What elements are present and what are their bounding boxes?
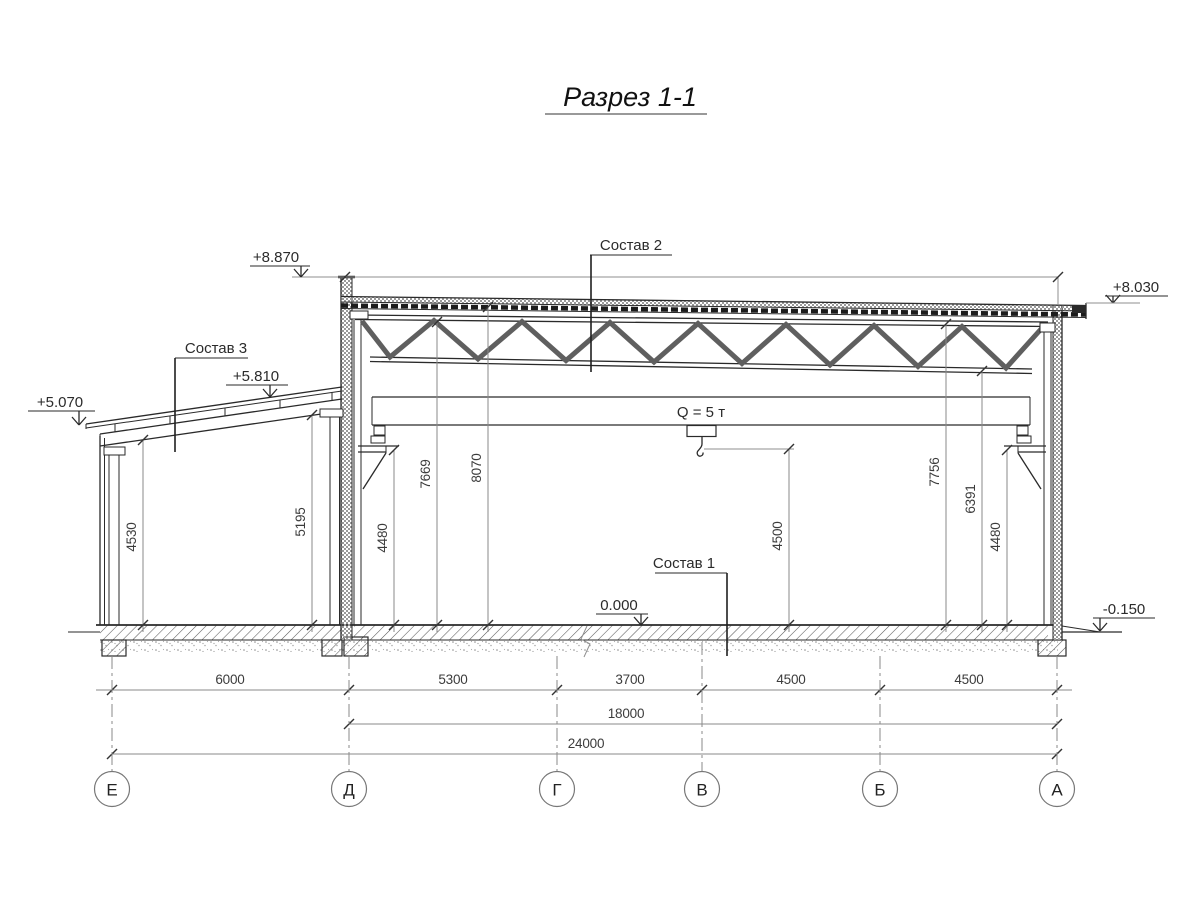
vdim-4500-hook-value: 4500: [770, 521, 785, 550]
dim-4500-vb: 4500: [776, 672, 805, 687]
annex: [86, 387, 343, 625]
page-title: Разрез 1-1: [563, 82, 697, 112]
dim-3700: 3700: [615, 672, 644, 687]
elevation-annex-ridge: +5.810: [226, 368, 288, 397]
axis-bubble-g: Г: [540, 772, 575, 807]
wall-axis-a: [1053, 306, 1062, 640]
footing-axis-d-left: [322, 640, 342, 656]
vdim-6391: 6391: [963, 366, 987, 632]
vdim-5195-value: 5195: [293, 507, 308, 536]
annex-capital-left: [104, 447, 125, 455]
dim-6000: 6000: [215, 672, 244, 687]
drawing-sheet: Разрез 1-1: [0, 0, 1200, 900]
elevation-ground: -0.150: [1093, 601, 1155, 631]
dim-4500-ba: 4500: [954, 672, 983, 687]
vdim-4480-right: 4480: [988, 445, 1012, 632]
callout-sostav-1-label: Состав 1: [653, 555, 715, 572]
section-1-1-drawing: Разрез 1-1: [0, 0, 1200, 900]
annex-roof-deck-top: [86, 387, 342, 424]
vdim-5195: 5195: [293, 410, 317, 632]
elevation-roof-right: +8.030: [1086, 279, 1168, 303]
axis-letter-b: Б: [874, 781, 885, 800]
dim-5300: 5300: [438, 672, 467, 687]
vdim-8070-value: 8070: [469, 453, 484, 482]
vdim-4480-left: 4480: [375, 445, 399, 632]
vertical-dimensions: 4530 5195 4480 7669 8070: [124, 302, 1012, 632]
vdim-4530-value: 4530: [124, 522, 139, 551]
crane-hook: [697, 437, 703, 457]
elevation-annex-ridge-value: +5.810: [233, 368, 279, 385]
axis-bubble-d: Д: [332, 772, 367, 807]
crane-rail-corbel-right: [1004, 426, 1046, 489]
vdim-4530: 4530: [124, 435, 148, 632]
elevation-roof-right-value: +8.030: [1113, 279, 1159, 296]
title-block: Разрез 1-1: [545, 82, 707, 114]
truss-support-right: [1040, 323, 1055, 332]
vdim-7756: 7756: [927, 319, 951, 632]
elevation-annex-eave-value: +5.070: [37, 394, 83, 411]
annex-capital-right: [320, 409, 343, 417]
vdim-4480-right-value: 4480: [988, 522, 1003, 551]
axis-letter-a: А: [1051, 781, 1063, 800]
axis-bubble-a: А: [1040, 772, 1075, 807]
callout-sostav-2-label: Состав 2: [600, 237, 662, 254]
truss-web-diagonals: [362, 321, 1042, 369]
axis-bubble-b: Б: [863, 772, 898, 807]
axis-letter-d: Д: [343, 781, 355, 800]
vdim-4480-left-value: 4480: [375, 523, 390, 552]
crane-trolley: [687, 426, 716, 437]
elevation-floor-value: 0.000: [600, 597, 638, 614]
crane-rail-corbel-left: [358, 426, 399, 489]
vdim-7669: 7669: [418, 317, 442, 632]
axis-bubble-e: Е: [95, 772, 130, 807]
floor-subbase: [100, 640, 1058, 652]
apron-slope: [1062, 626, 1100, 632]
roof-end-cap: [1072, 305, 1086, 313]
elevation-parapet: +8.870: [250, 249, 310, 277]
callout-sostav-3-label: Состав 3: [185, 340, 247, 357]
elevation-floor: 0.000: [596, 597, 648, 625]
span-dimensions: 6000 5300 3700 4500 4500 18000 24000: [96, 672, 1072, 759]
annex-floor-hatch: [100, 625, 341, 640]
vdim-4500-hook: 4500: [770, 444, 794, 632]
axis-bubble-v: В: [685, 772, 720, 807]
vdim-6391-value: 6391: [963, 484, 978, 513]
elevation-ground-value: -0.150: [1103, 601, 1146, 618]
callout-sostav-3: Состав 3: [175, 340, 248, 452]
floor-slab: [68, 625, 1122, 657]
dim-18000: 18000: [608, 706, 645, 721]
crane-bridge: Q = 5 т: [358, 397, 1046, 489]
dim-24000: 24000: [568, 736, 605, 751]
vdim-7669-value: 7669: [418, 459, 433, 488]
truss-support-left: [350, 311, 368, 319]
axis-letter-e: Е: [106, 781, 117, 800]
annex-purlins: [115, 393, 332, 433]
elevation-parapet-value: +8.870: [253, 249, 299, 266]
footing-axis-a: [1038, 640, 1066, 656]
elevation-annex-eave: +5.070: [28, 394, 95, 425]
vdim-7756-value: 7756: [927, 457, 942, 486]
wall-axis-d: [341, 277, 352, 640]
axis-letter-g: Г: [552, 781, 561, 800]
footing-axis-e: [102, 640, 126, 656]
crane-capacity-label: Q = 5 т: [677, 404, 725, 421]
axis-letter-v: В: [696, 781, 707, 800]
